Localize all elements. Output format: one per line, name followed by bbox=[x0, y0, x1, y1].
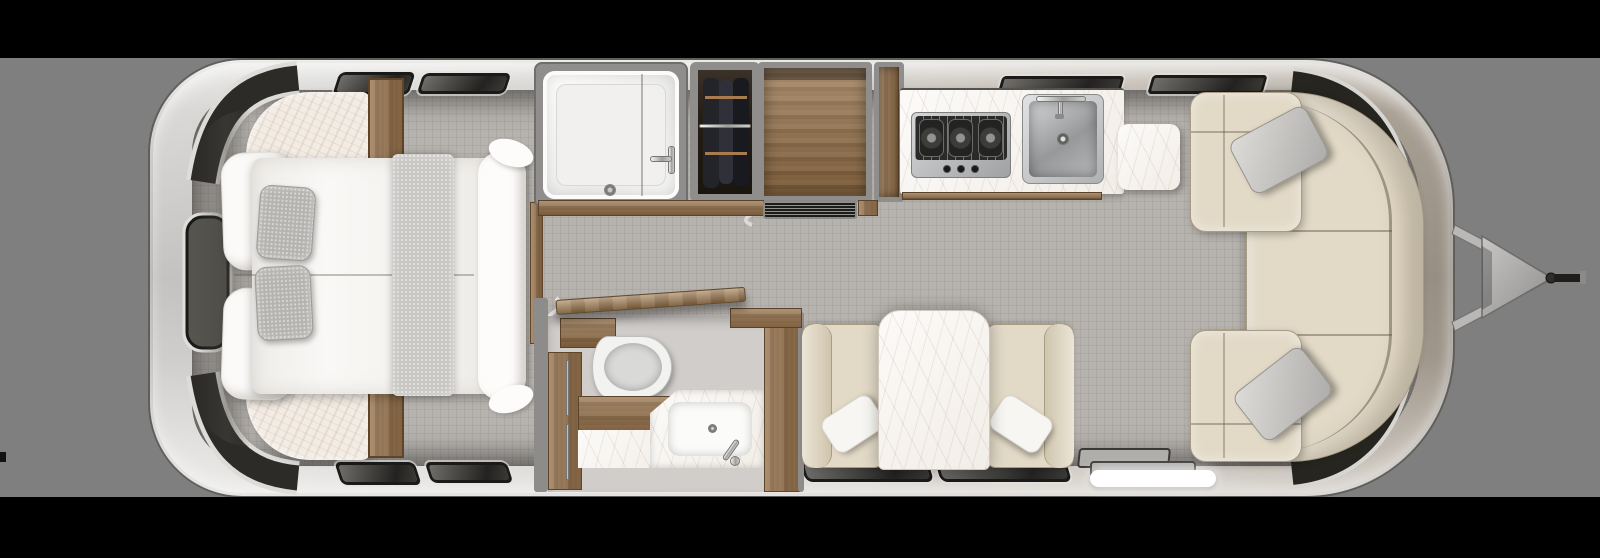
front-mid-window bbox=[1376, 217, 1414, 333]
roof-vent-bottom-1 bbox=[334, 462, 421, 485]
roof-vent-bottom-2 bbox=[425, 462, 514, 483]
letterbox-bar-top bbox=[0, 0, 1600, 58]
galley-window-1 bbox=[997, 76, 1124, 94]
dinette-window-2 bbox=[935, 461, 1072, 482]
floorplan-stage bbox=[0, 0, 1600, 558]
roof-vent-top-2 bbox=[417, 73, 512, 94]
letterbox-bar-bottom bbox=[0, 497, 1600, 558]
coupler-tip bbox=[1580, 271, 1586, 284]
dinette-window-1 bbox=[800, 461, 934, 482]
propane-cover-shadow bbox=[1482, 246, 1492, 310]
wall-hook-icon bbox=[746, 176, 758, 225]
rear-mid-window bbox=[187, 217, 228, 348]
coupler-shaft bbox=[1554, 274, 1582, 282]
wraparound-windows-layer bbox=[0, 0, 1600, 558]
propane-cover-plate bbox=[1482, 236, 1552, 318]
bathroom-door-handle-icon bbox=[549, 298, 561, 351]
hitch-assembly bbox=[1448, 212, 1588, 344]
galley-window-2 bbox=[1147, 75, 1267, 94]
roof-vent-top-1 bbox=[332, 72, 415, 95]
